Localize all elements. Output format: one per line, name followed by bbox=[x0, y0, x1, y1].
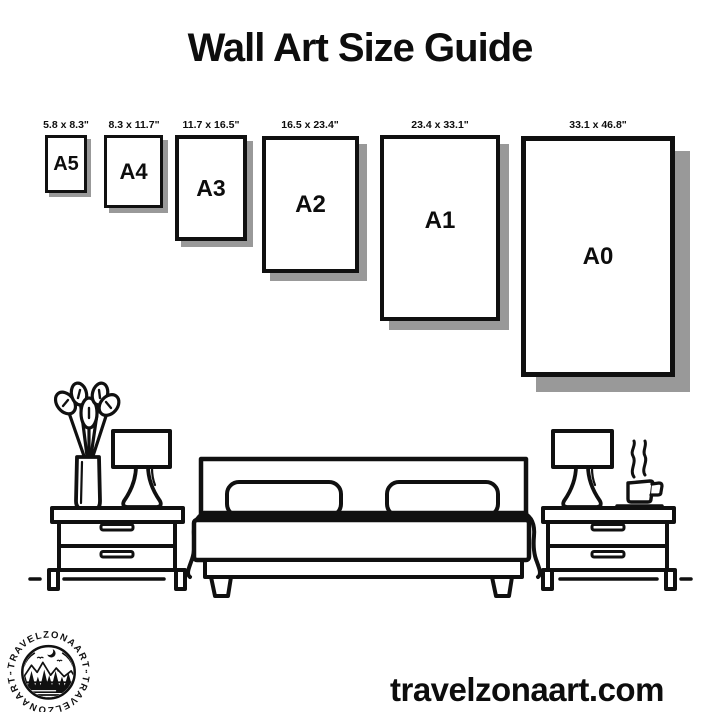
steam-icon bbox=[632, 441, 646, 477]
wall-art-size-guide: Wall Art Size Guide 5.8 x 8.3" 8.3 x 11.… bbox=[0, 0, 720, 720]
table-lamp-right-icon bbox=[553, 431, 612, 507]
table-lamp-left-icon bbox=[113, 431, 170, 507]
nightstand-left-top bbox=[52, 508, 183, 522]
bedroom-scene bbox=[0, 0, 720, 720]
nightstand-right-top bbox=[543, 508, 674, 522]
double-bed-icon bbox=[188, 459, 540, 596]
coffee-cup-icon bbox=[617, 441, 662, 506]
website-url: travelzonaart.com bbox=[0, 671, 720, 709]
